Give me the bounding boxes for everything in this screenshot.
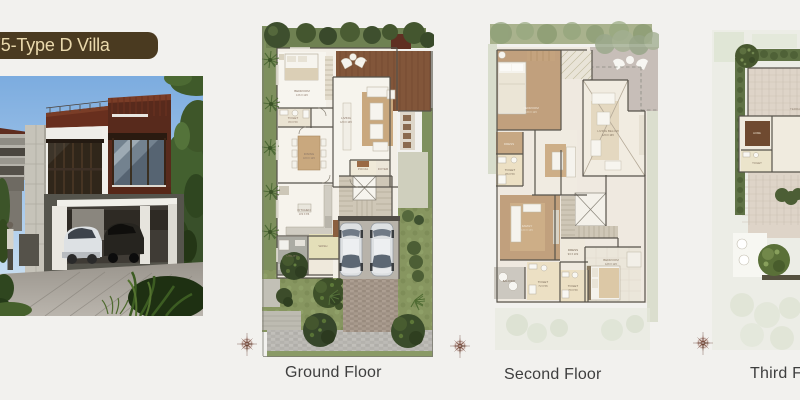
svg-text:11'0 X 13'0: 11'0 X 13'0 bbox=[521, 229, 533, 232]
svg-text:POOJA: POOJA bbox=[358, 167, 368, 171]
svg-text:DINING: DINING bbox=[304, 152, 315, 156]
svg-text:7'2 X 5'6: 7'2 X 5'6 bbox=[538, 285, 548, 288]
svg-text:10'0 X 8'6: 10'0 X 8'6 bbox=[299, 213, 310, 216]
svg-text:8'6 X 5'0: 8'6 X 5'0 bbox=[505, 173, 515, 176]
svg-text:KITCHEN: KITCHEN bbox=[297, 208, 310, 212]
svg-text:TERRACE: TERRACE bbox=[790, 107, 800, 111]
svg-text:UTILITY: UTILITY bbox=[286, 254, 297, 258]
svg-text:BEDROOM: BEDROOM bbox=[294, 89, 310, 93]
svg-text:TOILET: TOILET bbox=[505, 168, 516, 172]
svg-text:DRESS: DRESS bbox=[504, 142, 514, 146]
svg-text:HOME: HOME bbox=[753, 131, 761, 135]
svg-text:TOILET: TOILET bbox=[568, 284, 579, 288]
svg-text:FAMILY: FAMILY bbox=[522, 224, 532, 228]
svg-text:10'0 X 12'6: 10'0 X 12'6 bbox=[303, 157, 315, 160]
svg-text:LIVING: LIVING bbox=[341, 116, 352, 120]
svg-text:BALCONY: BALCONY bbox=[503, 279, 516, 283]
svg-text:TOILET: TOILET bbox=[752, 161, 762, 165]
svg-text:9'2 X 10'2: 9'2 X 10'2 bbox=[568, 253, 579, 256]
svg-text:TOILET: TOILET bbox=[288, 116, 299, 120]
svg-text:BEDROOM: BEDROOM bbox=[603, 258, 619, 262]
svg-text:14'0 X 12'0: 14'0 X 12'0 bbox=[525, 111, 537, 114]
svg-text:12'0 X 16'0: 12'0 X 16'0 bbox=[340, 121, 352, 124]
svg-text:FOYER: FOYER bbox=[378, 167, 389, 171]
svg-text:SIT OUT: SIT OUT bbox=[357, 59, 368, 63]
svg-text:12'0 X 16'0: 12'0 X 16'0 bbox=[602, 134, 614, 137]
svg-text:8'0 X 5'0: 8'0 X 5'0 bbox=[288, 121, 298, 124]
svg-text:WASH: WASH bbox=[319, 244, 328, 248]
svg-text:DRESS: DRESS bbox=[568, 248, 578, 252]
svg-text:7'0 X 5'0: 7'0 X 5'0 bbox=[568, 289, 578, 292]
svg-text:TOILET: TOILET bbox=[538, 280, 549, 284]
svg-text:BEDROOM: BEDROOM bbox=[523, 106, 539, 110]
svg-text:11'6 X 12'0: 11'6 X 12'0 bbox=[296, 94, 308, 97]
svg-text:12'0 X 11'0: 12'0 X 11'0 bbox=[605, 263, 617, 266]
svg-text:LIVING BELOW: LIVING BELOW bbox=[597, 129, 619, 133]
